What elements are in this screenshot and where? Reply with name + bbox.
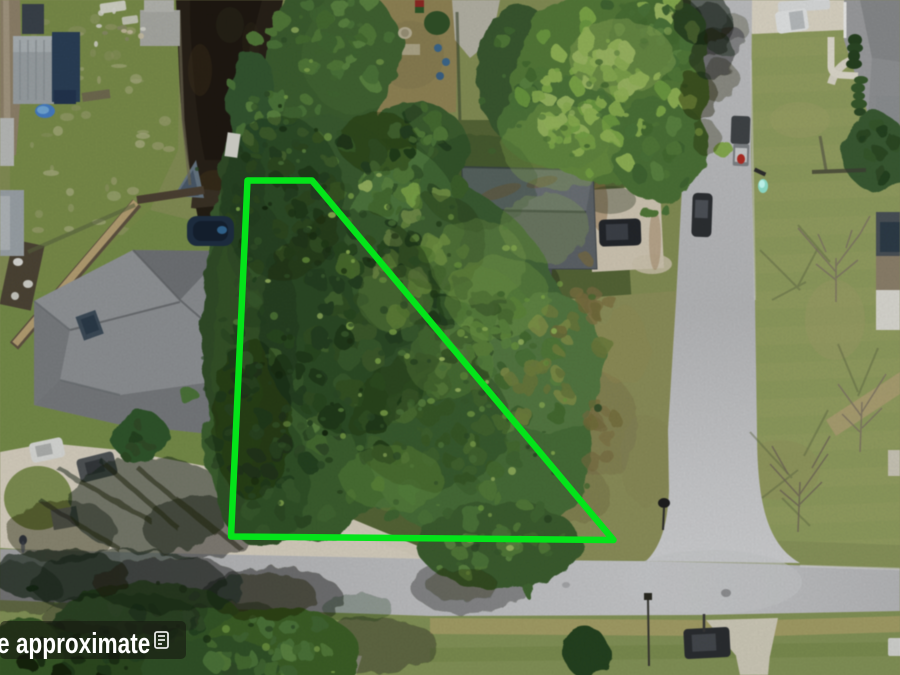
svg-text:e approximate: e approximate [0, 626, 150, 659]
